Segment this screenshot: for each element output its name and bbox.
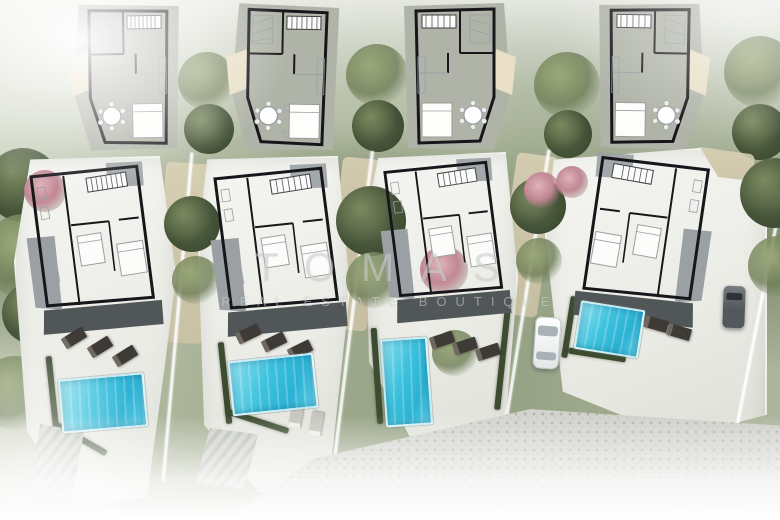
villa-3-building [369, 151, 521, 343]
villa-plan-drawing [15, 155, 174, 355]
floor-plan-drawing [63, 1, 186, 153]
bed [117, 240, 148, 276]
upper-floor-plan-3 [394, 0, 526, 152]
upper-floor-plan-1 [63, 1, 186, 153]
white-car [532, 316, 562, 370]
villa-plan-drawing [199, 157, 358, 357]
swimming-pool-villa-4 [574, 300, 646, 359]
car-rear-window [536, 351, 557, 360]
swimming-pool-villa-3 [380, 336, 433, 427]
site-plan-render: TOMAS REAL ESTATE BOUTIQUE [0, 0, 780, 520]
stairs [86, 172, 128, 192]
mirrored-plan [404, 3, 516, 149]
swimming-pool-villa-1 [58, 372, 148, 433]
van-windshield [726, 293, 742, 301]
car-windshield [538, 325, 559, 336]
bed [77, 233, 105, 266]
flowering-bush [556, 166, 588, 198]
bed [284, 104, 320, 139]
floor-plan-drawing [587, 0, 722, 153]
bed [127, 103, 163, 138]
floor-plan-drawing [221, 1, 344, 153]
tree-canopy [516, 238, 562, 284]
upper-floor-plan-2 [221, 1, 344, 153]
floor-plan-drawing [394, 0, 526, 152]
upper-floor-plan-4 [587, 0, 722, 153]
swimming-pool-villa-2 [227, 353, 318, 417]
stairs [287, 16, 321, 30]
villa-2-building [199, 157, 358, 357]
villa-1-building [15, 155, 174, 355]
stairs [127, 15, 161, 29]
tree-canopy [544, 110, 592, 158]
dark-van [722, 286, 745, 329]
villa-plan-drawing [369, 151, 521, 343]
mirrored-plan [597, 2, 712, 150]
flowering-bush [524, 172, 560, 208]
